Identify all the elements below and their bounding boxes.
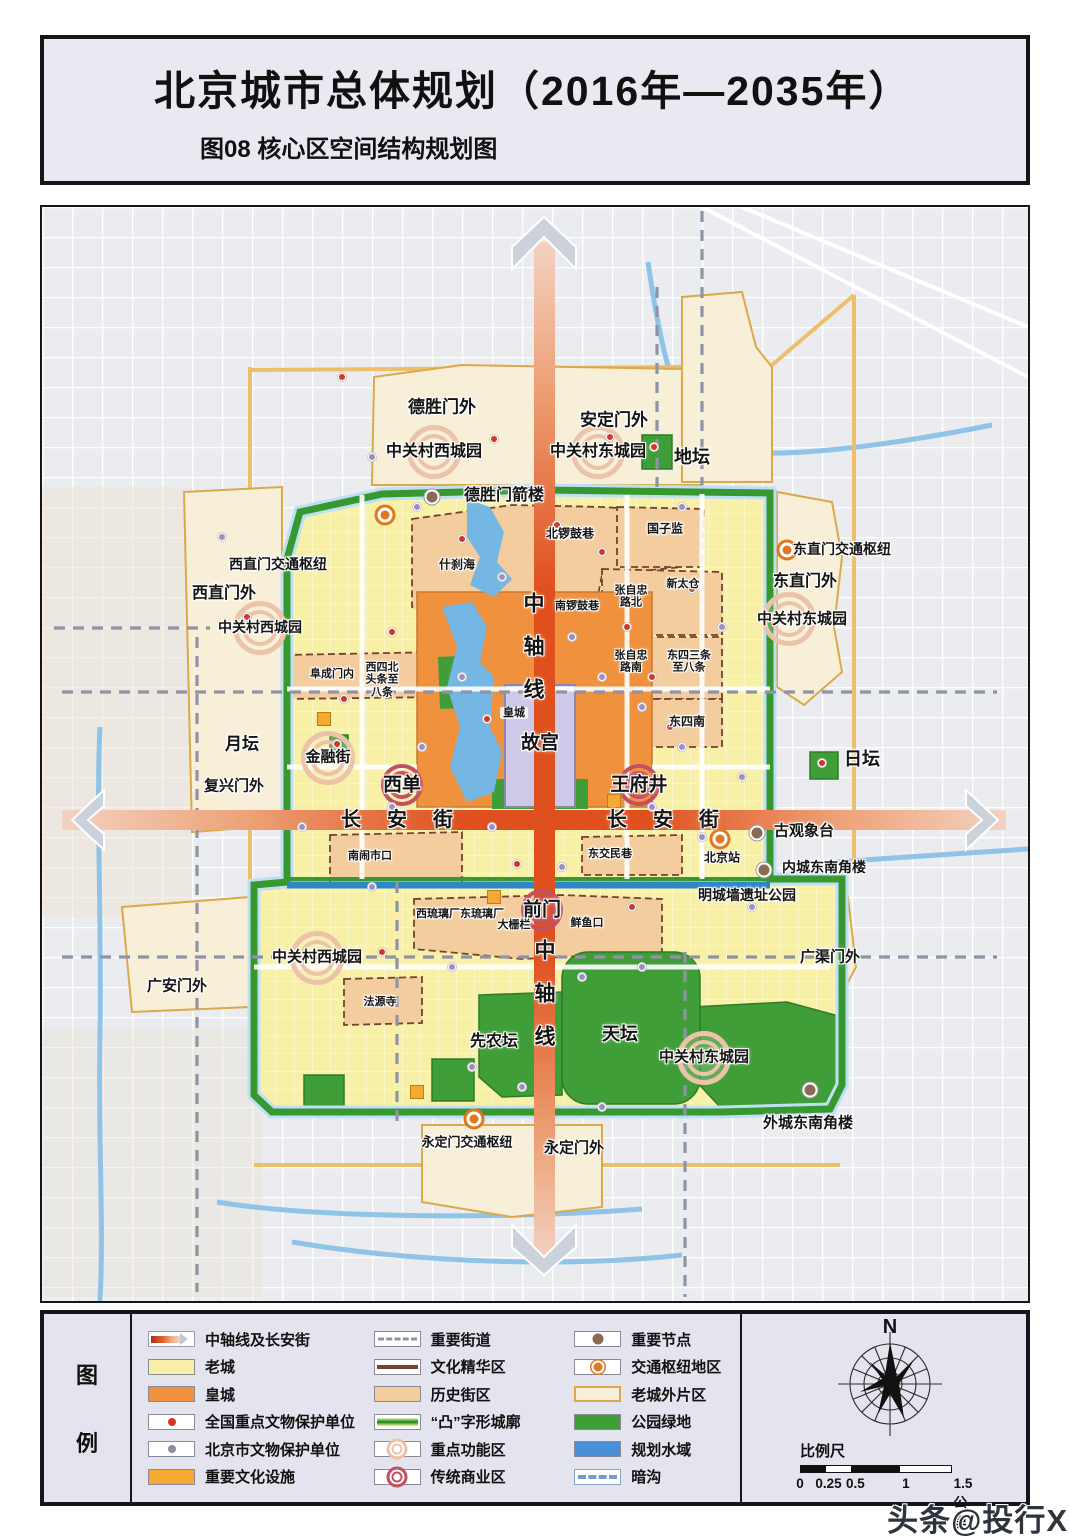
compass-rose: N — [826, 1320, 954, 1448]
map-label: 中关村西城园 — [218, 620, 302, 636]
legend-item-node: 重要节点 — [574, 1329, 740, 1350]
map-label: 长安街 — [341, 809, 479, 831]
map-label: 德胜门箭楼 — [464, 487, 544, 505]
legend-label: 交通枢纽地区 — [631, 1356, 721, 1377]
legend-item-municipal_heritage: 北京市文物保护单位 — [148, 1439, 374, 1460]
scale-bar-segments — [800, 1465, 952, 1473]
wall-swatch — [374, 1414, 421, 1430]
map-label: 张自忠 路北 — [615, 585, 648, 610]
map-label: 东直门外 — [773, 573, 837, 591]
legend-label: 重点功能区 — [431, 1439, 506, 1460]
scale-tick: 0 — [796, 1476, 804, 1491]
legend-label: 中轴线及长安街 — [205, 1329, 310, 1350]
map-label: 日坛 — [844, 749, 880, 769]
page-title: 北京城市总体规划（2016年—2035年） — [44, 57, 1026, 117]
scale-tick: 0.25 — [815, 1476, 841, 1491]
map-label: 鲜鱼口 — [571, 917, 604, 929]
map-label: 中 轴 线 — [524, 582, 545, 711]
map-label: 西直门外 — [192, 585, 256, 603]
legend-item-outer_district: 老城外片区 — [574, 1384, 740, 1405]
map-label: 永定门交通枢纽 — [421, 1136, 512, 1151]
legend-label: 历史街区 — [431, 1384, 491, 1405]
map-label: 广安门外 — [147, 979, 207, 996]
map-label: 西四北 头条至 八条 — [366, 662, 399, 699]
map-label: 国子监 — [647, 522, 683, 535]
map-label: 天坛 — [602, 1024, 638, 1044]
legend-item-culture_zone: 文化精华区 — [374, 1356, 575, 1377]
culture_zone-swatch — [374, 1359, 421, 1375]
imperial_city-swatch — [148, 1386, 195, 1402]
legend-label: 皇城 — [205, 1384, 235, 1405]
legend-label: 文化精华区 — [431, 1356, 506, 1377]
function_zone-swatch — [374, 1441, 421, 1457]
map-label: 北京站 — [704, 851, 740, 864]
legend-label: 全国重点文物保护单位 — [205, 1411, 355, 1432]
legend-header: 图 例 — [44, 1314, 132, 1502]
park-swatch — [574, 1414, 621, 1430]
water-swatch — [574, 1441, 621, 1457]
scale-tick-labels: 00.250.511.5公里 — [800, 1476, 968, 1492]
map-label: 外城东南角楼 — [763, 1116, 853, 1133]
watermark: 头条@投行X — [887, 1495, 1068, 1540]
map-label: 东四三条 至八条 — [667, 650, 711, 675]
legend-column: 中轴线及长安街老城皇城全国重点文物保护单位北京市文物保护单位重要文化设施 — [148, 1314, 374, 1502]
node-swatch — [574, 1331, 621, 1347]
map-label: 新太仓 — [667, 578, 700, 590]
culture_facility-swatch — [148, 1469, 195, 1485]
legend-item-park: 公园绿地 — [574, 1411, 740, 1432]
hub-swatch — [574, 1359, 621, 1375]
map-label: 阜成门内 — [310, 668, 354, 680]
outer_district-swatch — [574, 1386, 621, 1402]
legend-item-major_street: 重要街道 — [374, 1329, 575, 1350]
compass-icon — [826, 1320, 954, 1448]
map-label: 北锣鼓巷 — [546, 527, 594, 540]
historic_district-swatch — [374, 1386, 421, 1402]
map-label: 古观象台 — [774, 824, 834, 841]
map-label: 王府井 — [610, 774, 667, 795]
legend-item-commercial_zone: 传统商业区 — [374, 1466, 575, 1487]
legend-item-national_heritage: 全国重点文物保护单位 — [148, 1411, 374, 1432]
legend-item-old_city: 老城 — [148, 1356, 374, 1377]
legend-item-imperial_city: 皇城 — [148, 1384, 374, 1405]
legend-item-culvert: 暗沟 — [574, 1466, 740, 1487]
legend-label: 老城外片区 — [631, 1384, 706, 1405]
legend-label: 北京市文物保护单位 — [205, 1439, 340, 1460]
major_street-swatch — [374, 1331, 421, 1347]
map-label: 东四南 — [669, 715, 705, 728]
map-label: 法源寺 — [364, 996, 397, 1008]
legend-panel: 图 例 中轴线及长安街老城皇城全国重点文物保护单位北京市文物保护单位重要文化设施… — [40, 1310, 1030, 1506]
legend-columns: 中轴线及长安街老城皇城全国重点文物保护单位北京市文物保护单位重要文化设施重要街道… — [148, 1314, 740, 1502]
legend-label: 重要文化设施 — [205, 1466, 295, 1487]
national_heritage-swatch — [148, 1414, 195, 1430]
legend-header-char: 图 — [76, 1358, 98, 1390]
map-label: 中关村东城园 — [659, 1050, 749, 1067]
map-label: 张自忠 路南 — [615, 650, 648, 675]
culvert-swatch — [574, 1469, 621, 1485]
map-label: 地坛 — [674, 447, 710, 467]
commercial_zone-swatch — [374, 1469, 421, 1485]
legend-item-hub: 交通枢纽地区 — [574, 1356, 740, 1377]
map-panel: 德胜门外安定门外中关村西城园中关村东城园地坛德胜门箭楼东直门交通枢纽西直门交通枢… — [40, 205, 1030, 1303]
map-label: 内城东南角楼 — [782, 860, 866, 876]
map-label: 月坛 — [225, 734, 259, 753]
map-label: 南锣鼓巷 — [555, 600, 599, 612]
map-label: 永定门外 — [544, 1141, 604, 1158]
map-label: 南闹市口 — [348, 850, 392, 862]
legend-item-water: 规划水域 — [574, 1439, 740, 1460]
legend-item-axis_road: 中轴线及长安街 — [148, 1329, 374, 1350]
map-label: 金融街 — [305, 750, 350, 767]
map-label: 西直门交通枢纽 — [229, 557, 327, 573]
page: 北京城市总体规划（2016年—2035年） 图08 核心区空间结构规划图 — [0, 0, 1070, 1540]
page-subtitle: 图08 核心区空间结构规划图 — [44, 129, 1026, 164]
map-label: 复兴门外 — [204, 779, 264, 796]
legend-column: 重要节点交通枢纽地区老城外片区公园绿地规划水域暗沟 — [574, 1314, 740, 1502]
map-label: 东直门交通枢纽 — [793, 542, 891, 558]
map-label: 中关村西城园 — [386, 443, 482, 461]
compass-north-label: N — [883, 1316, 897, 1339]
map-label: 广渠门外 — [800, 950, 860, 967]
legend-item-culture_facility: 重要文化设施 — [148, 1466, 374, 1487]
map-label-layer: 德胜门外安定门外中关村西城园中关村东城园地坛德胜门箭楼东直门交通枢纽西直门交通枢… — [42, 207, 1028, 1301]
legend-label: 老城 — [205, 1356, 235, 1377]
legend-label: 重要街道 — [431, 1329, 491, 1350]
legend-item-historic_district: 历史街区 — [374, 1384, 575, 1405]
scale-tick: 0.5 — [846, 1476, 865, 1491]
map-label: 故宫 — [521, 732, 559, 753]
map-label: 什刹海 — [439, 558, 475, 571]
legend-right-section: N 比例尺 00.250.511.5公里 — [740, 1314, 1026, 1502]
legend-label: “凸”字形城廓 — [431, 1411, 521, 1432]
scale-title: 比例尺 — [800, 1440, 990, 1461]
title-block: 北京城市总体规划（2016年—2035年） 图08 核心区空间结构规划图 — [40, 35, 1030, 185]
legend-label: 传统商业区 — [431, 1466, 506, 1487]
map-label: 中关村西城园 — [272, 950, 362, 967]
map-label: 西琉璃厂东琉璃厂 — [416, 908, 504, 920]
map-label: 东交民巷 — [588, 848, 632, 860]
map-label: 中关村东城园 — [757, 612, 847, 629]
map-label: 德胜门外 — [408, 397, 476, 416]
map-label: 中关村东城园 — [550, 443, 646, 461]
legend-item-function_zone: 重点功能区 — [374, 1439, 575, 1460]
legend-label: 重要节点 — [631, 1329, 691, 1350]
old_city-swatch — [148, 1359, 195, 1375]
map-label: 明城墙遗址公园 — [698, 888, 796, 904]
municipal_heritage-swatch — [148, 1441, 195, 1457]
scale-tick: 1 — [902, 1476, 910, 1491]
map-label: 中 轴 线 — [535, 929, 556, 1058]
legend-item-wall: “凸”字形城廓 — [374, 1411, 575, 1432]
map-label: 安定门外 — [580, 410, 648, 429]
map-label: 先农坛 — [470, 1033, 518, 1051]
legend-label: 暗沟 — [631, 1466, 661, 1487]
scale-bar: 比例尺 00.250.511.5公里 — [800, 1440, 990, 1492]
map-label: 西单 — [383, 774, 421, 795]
legend-header-char: 例 — [76, 1426, 98, 1458]
map-label: 大栅栏 — [498, 919, 531, 931]
map-label: 前门 — [523, 899, 561, 920]
axis_road-swatch — [148, 1331, 195, 1347]
legend-column: 重要街道文化精华区历史街区“凸”字形城廓重点功能区传统商业区 — [374, 1314, 575, 1502]
map-label: 长安街 — [607, 809, 745, 831]
legend-label: 公园绿地 — [631, 1411, 691, 1432]
legend-label: 规划水域 — [631, 1439, 691, 1460]
